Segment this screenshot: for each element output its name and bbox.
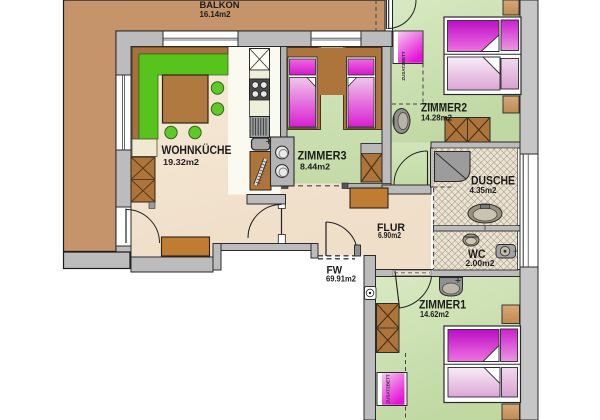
svg-text:8.44m2: 8.44m2 [300, 162, 330, 172]
svg-text:ZUSATZBETT: ZUSATZBETT [401, 51, 406, 80]
svg-text:2.00m2: 2.00m2 [466, 258, 495, 268]
svg-text:16.14m2: 16.14m2 [200, 10, 232, 19]
svg-text:14.62m2: 14.62m2 [420, 309, 449, 319]
svg-text:6.90m2: 6.90m2 [378, 231, 401, 240]
svg-text:ZUSATZBETT: ZUSATZBETT [386, 374, 391, 403]
svg-text:69.91m2: 69.91m2 [326, 275, 357, 284]
svg-text:14.28m2: 14.28m2 [421, 113, 452, 123]
svg-text:4.35m2: 4.35m2 [470, 185, 497, 195]
svg-text:WOHNKÜCHE: WOHNKÜCHE [162, 142, 232, 157]
svg-text:19.32m2: 19.32m2 [163, 157, 199, 167]
